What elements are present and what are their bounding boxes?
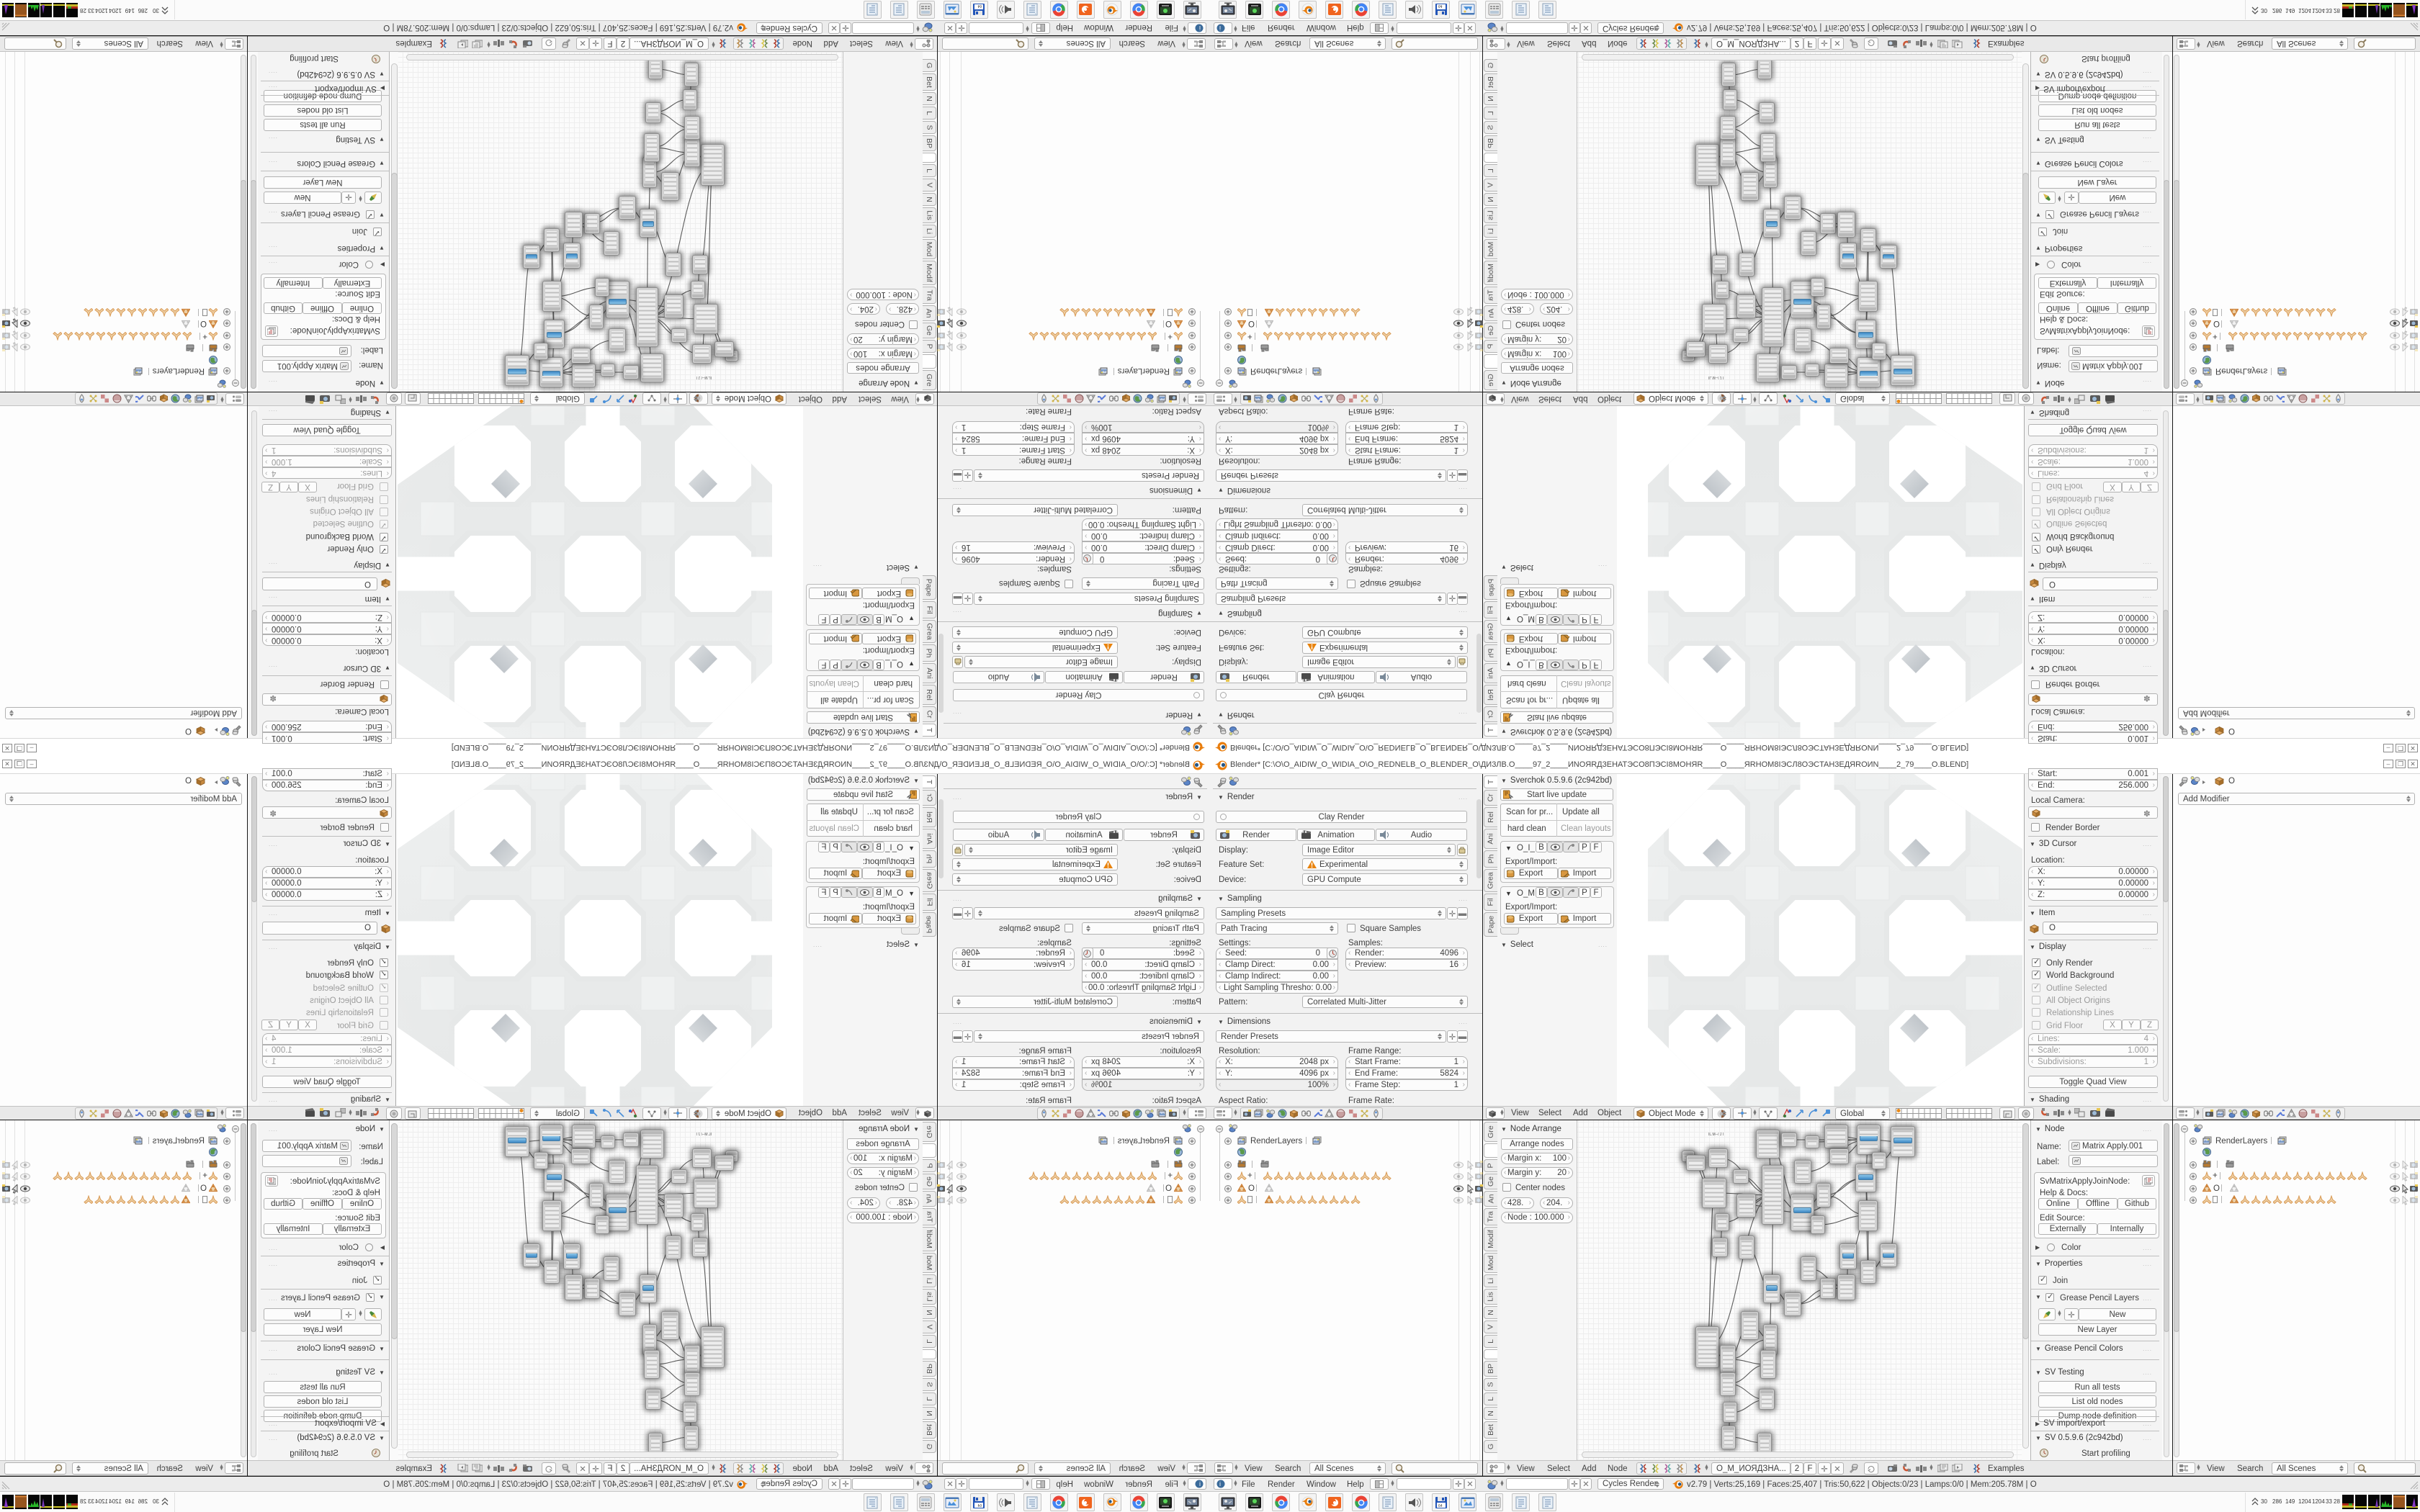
svg-text:i: i [1199, 1480, 1201, 1488]
svg-text:64: 64 [978, 1504, 982, 1508]
svg-text:i: i [1199, 24, 1201, 32]
svg-text:64: 64 [1438, 1504, 1443, 1508]
svg-text:i: i [1219, 1480, 1221, 1488]
svg-text:64: 64 [1438, 4, 1443, 9]
svg-text:64: 64 [978, 4, 982, 9]
svg-text:i: i [1219, 24, 1221, 32]
